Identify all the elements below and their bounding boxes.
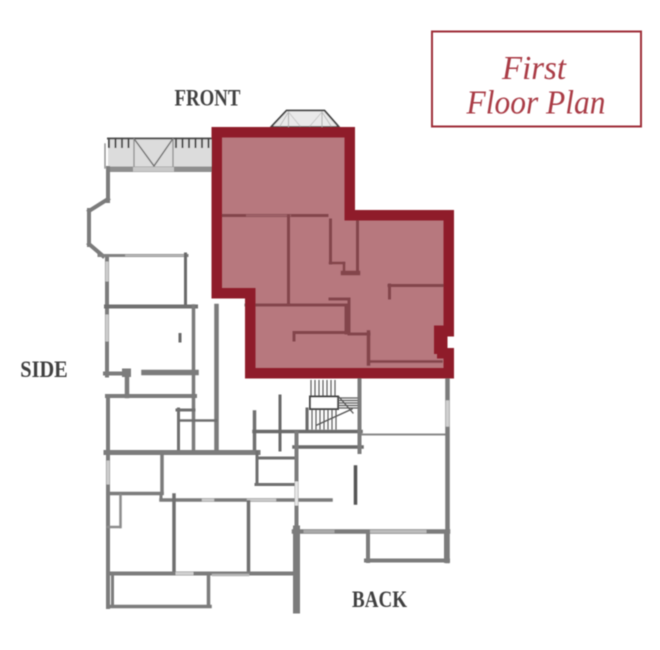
svg-text:BACK: BACK (352, 587, 407, 612)
svg-text:Floor Plan: Floor Plan (466, 85, 606, 122)
svg-text:FRONT: FRONT (175, 86, 241, 111)
svg-text:SIDE: SIDE (20, 357, 68, 382)
svg-text:First: First (501, 50, 567, 87)
